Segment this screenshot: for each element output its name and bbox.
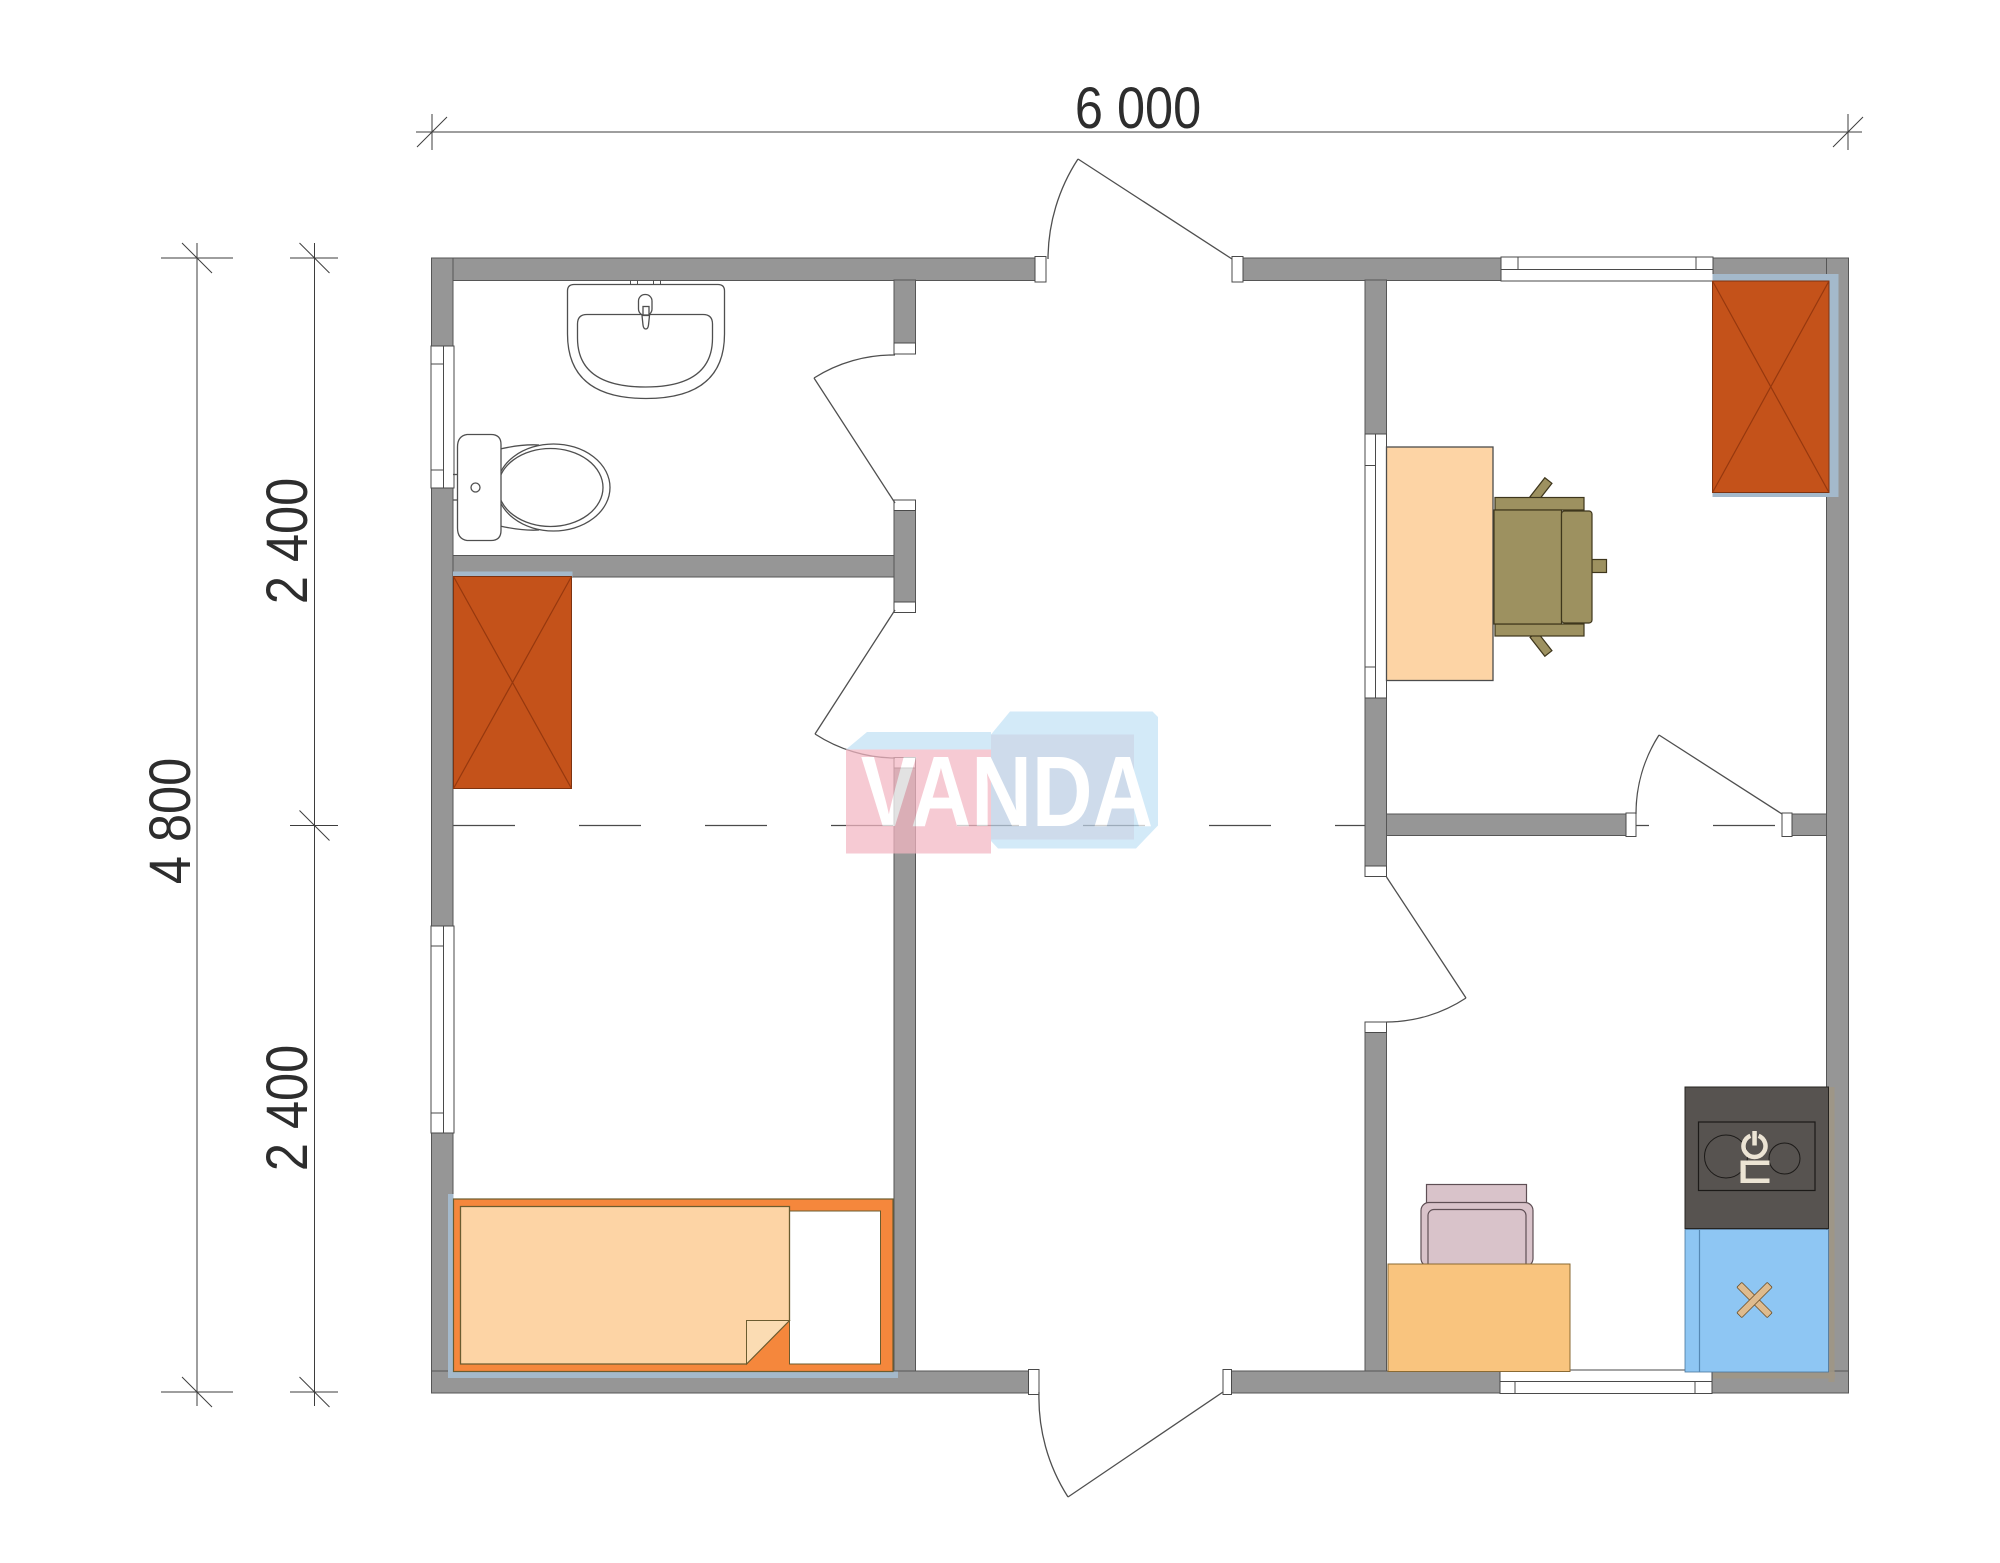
svg-text:VANDA: VANDA: [861, 735, 1153, 848]
svg-text:6 000: 6 000: [1075, 76, 1201, 141]
svg-text:2 400: 2 400: [255, 478, 320, 604]
svg-text:4 800: 4 800: [138, 758, 203, 884]
svg-text:2 400: 2 400: [255, 1045, 320, 1171]
